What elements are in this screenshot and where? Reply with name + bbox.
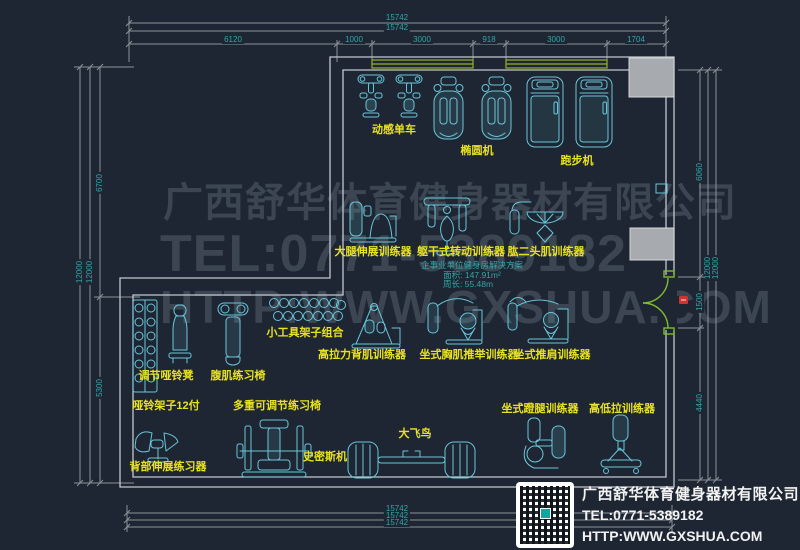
- company-website: HTTP:WWW.GXSHUA.COM: [582, 528, 762, 544]
- treadmill-icon: [527, 77, 563, 147]
- window-strips: [372, 60, 607, 68]
- label-spin-bike: 动感单车: [372, 124, 416, 136]
- dim-top-total-2: 15742: [384, 24, 410, 32]
- company-name: 广西舒华体育健身器材有限公司: [582, 483, 799, 504]
- lat-pulldown-machine-icon: [352, 304, 400, 349]
- label-adjustable-dumbbell-bench: 调节哑铃凳: [139, 370, 194, 382]
- label-treadmill: 跑步机: [561, 155, 594, 167]
- dim-left-total-2: 12000: [86, 259, 94, 285]
- elliptical-icon: [482, 77, 511, 139]
- label-chest-press: 坐式胸肌推举训练器: [420, 349, 519, 361]
- dim-top-seg: 918: [480, 36, 497, 44]
- label-multi-adj-bench: 多重可调节练习椅: [233, 400, 321, 412]
- floor-plan-svg: [0, 0, 800, 550]
- wall-columns: [629, 58, 674, 260]
- shoulder-press-machine-icon: [508, 298, 568, 344]
- treadmill-icon: [576, 77, 612, 147]
- spin-bike-icon: [358, 75, 384, 117]
- perimeter-value: 周长: 55.48m: [443, 280, 493, 290]
- ab-bench-icon: [218, 303, 248, 365]
- dim-right-upper: 6060: [696, 161, 704, 183]
- dim-top-total-1: 15742: [384, 14, 410, 22]
- dim-bottom-total: 15742: [384, 519, 410, 527]
- elliptical-icon: [434, 77, 463, 139]
- label-torso-rotation: 躯干式转动训练器: [417, 246, 505, 258]
- label-biceps-trainer: 肱二头肌训练器: [508, 246, 585, 258]
- dim-top-seg: 3000: [411, 36, 433, 44]
- dim-top-seg: 6120: [222, 36, 244, 44]
- cad-floor-plan: 广西舒华体育健身器材有限公司 TEL:0771-5389182 HTTP:WWW…: [0, 0, 800, 550]
- qr-logo: [540, 508, 551, 519]
- label-lat-pulldown: 高拉力背肌训练器: [318, 349, 406, 361]
- red-marker-icon: [679, 296, 688, 304]
- spin-bike-icon: [396, 75, 422, 117]
- dim-right-total-2: 12000: [712, 255, 720, 281]
- biceps-machine-icon: [510, 202, 563, 242]
- label-leg-extension: 大腿伸展训练器: [335, 246, 412, 258]
- chest-press-machine-icon: [428, 299, 482, 344]
- dim-top-seg: 3000: [545, 36, 567, 44]
- back-extension-machine-icon: [135, 432, 178, 462]
- double-door-icon: [643, 271, 677, 334]
- label-shoulder-press: 坐式推肩训练器: [514, 349, 591, 361]
- label-cable-crossover: 大飞鸟: [399, 428, 432, 440]
- dim-left-lower: 5300: [96, 377, 104, 399]
- column-top-right: [629, 58, 674, 97]
- company-telephone: TEL:0771-5389182: [582, 507, 703, 523]
- dim-top-seg: 1704: [625, 36, 647, 44]
- label-dumbbell-rack: 哑铃架子12付: [132, 400, 199, 412]
- qr-code-card: [516, 482, 574, 548]
- label-smith-machine: 史密斯机: [303, 451, 347, 463]
- dim-left-total-1: 12000: [76, 259, 84, 285]
- tool-rack-icon: [270, 299, 346, 321]
- label-leg-press: 坐式蹬腿训练器: [502, 403, 579, 415]
- label-back-extension: 背部伸展练习器: [130, 461, 207, 473]
- label-ab-bench: 腹肌练习椅: [211, 370, 266, 382]
- label-tool-rack: 小工具架子组合: [267, 327, 344, 339]
- dim-right-lower: 4440: [696, 392, 704, 414]
- cable-crossover-icon: [348, 442, 475, 478]
- adjustable-dumbbell-bench-icon: [169, 305, 191, 363]
- high-low-pull-machine-icon: [601, 415, 641, 474]
- dim-right-door: 1500: [696, 291, 704, 313]
- label-high-low-pull: 高低拉训练器: [589, 403, 655, 415]
- leg-press-machine-icon: [524, 418, 565, 468]
- dim-left-upper: 6700: [96, 172, 104, 194]
- dim-top-seg: 1000: [343, 36, 365, 44]
- smith-machine-icon: [237, 420, 311, 477]
- column-mid-right: [630, 228, 674, 260]
- label-elliptical: 椭圆机: [461, 145, 494, 157]
- leg-extension-machine-icon: [350, 202, 396, 242]
